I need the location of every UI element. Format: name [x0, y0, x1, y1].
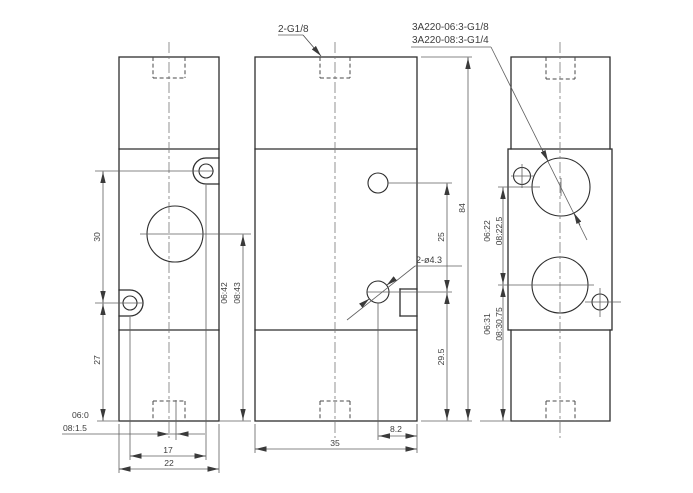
- dim-84-label: 84: [457, 203, 467, 213]
- technical-drawing-canvas: 30 27 17 22 06:0 08:1.5 06:42 08:43: [0, 0, 693, 493]
- middle-view-dimensions: 25 29.5 84 8.2 35 2-ø4.3 2-G1/8: [255, 24, 472, 453]
- port-height-08-label: 08:30.75: [494, 307, 504, 341]
- dim-22-label: 22: [164, 458, 174, 468]
- hidden-port-bottom-right-view: [546, 401, 575, 421]
- middle-view-outline: [255, 57, 417, 421]
- dim-8-2-label: 8.2: [390, 424, 402, 434]
- dim-17-label: 17: [163, 445, 173, 455]
- center-height-06-label: 06:42: [219, 282, 229, 304]
- port-spacing-08-label: 08:22.5: [494, 216, 504, 245]
- top-port-callout: 2-G1/8: [278, 24, 309, 35]
- port-offset-06-label: 06:0: [72, 410, 89, 420]
- dim-35-label: 35: [330, 438, 340, 448]
- left-view-dimensions: 30 27 17 22 06:0 08:1.5 06:42 08:43: [62, 171, 251, 473]
- right-view-top-section: [511, 57, 610, 149]
- dim-29-5-label: 29.5: [436, 348, 446, 365]
- middle-view: [255, 42, 417, 438]
- mounting-holes-callout: 2-ø4.3: [416, 255, 442, 265]
- pilot-hole-upper: [368, 173, 388, 193]
- model-spec-line2: 3A220-08:3-G1/4: [412, 35, 489, 46]
- right-view-arrowheads: [503, 149, 580, 420]
- dim-25-label: 25: [436, 232, 446, 242]
- right-view: [508, 42, 621, 438]
- model-spec-line1: 3A220-06:3-G1/8: [412, 22, 489, 33]
- port-offset-08-label: 08:1.5: [63, 423, 87, 433]
- left-view-arrowheads: [103, 172, 243, 469]
- left-view: [119, 42, 219, 438]
- dim-27-label: 27: [92, 355, 102, 365]
- valve-drawing: 30 27 17 22 06:0 08:1.5 06:42 08:43: [0, 0, 693, 493]
- right-view-bottom-section: [511, 330, 610, 421]
- dim-30-label: 30: [92, 232, 102, 242]
- side-boss: [400, 289, 417, 316]
- center-height-08-label: 08:43: [232, 282, 242, 304]
- port-spacing-06-label: 06:22: [482, 220, 492, 242]
- port-height-06-label: 06:31: [482, 313, 492, 335]
- hidden-port-top-right-view: [546, 57, 575, 79]
- model-leader-line: [491, 47, 587, 240]
